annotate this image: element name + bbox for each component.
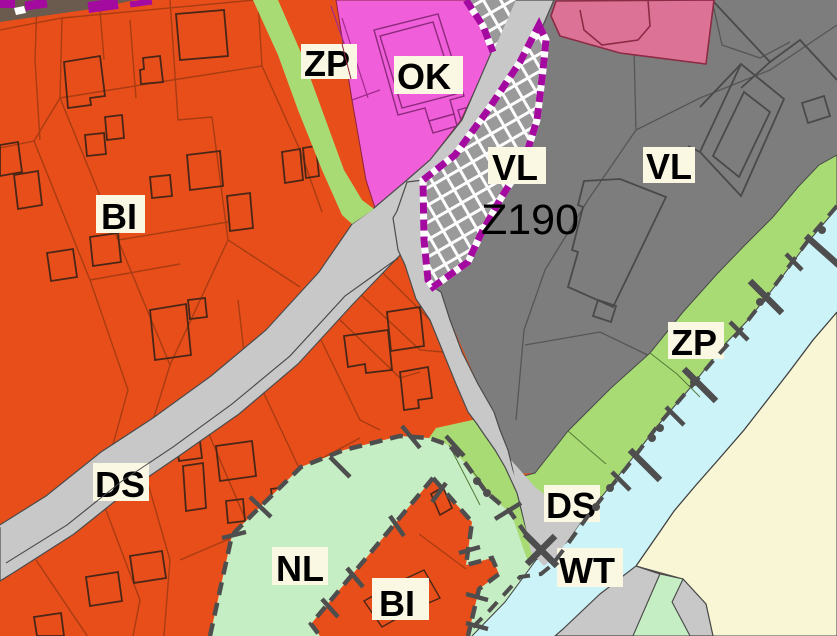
svg-text:OK: OK: [397, 56, 451, 97]
svg-text:BI: BI: [101, 196, 137, 237]
svg-text:ZP: ZP: [671, 322, 717, 363]
svg-text:NL: NL: [276, 548, 324, 589]
svg-text:BI: BI: [379, 583, 415, 624]
svg-text:Z190: Z190: [481, 196, 579, 244]
svg-text:DS: DS: [546, 485, 596, 526]
svg-text:VL: VL: [492, 147, 538, 188]
svg-text:VL: VL: [646, 146, 692, 187]
svg-text:WT: WT: [559, 550, 615, 591]
